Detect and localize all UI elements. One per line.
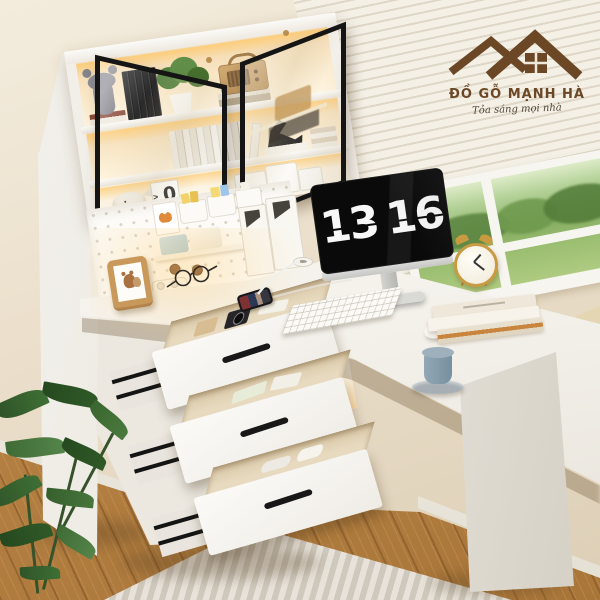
drawer-slide — [112, 366, 163, 384]
drawer-handle[interactable] — [264, 489, 313, 510]
leaf — [45, 488, 94, 509]
bear-illustration-small — [132, 276, 141, 287]
hanging-watch — [169, 263, 181, 275]
cup-lid — [422, 347, 454, 358]
note-card — [220, 184, 230, 196]
photo-frame-mat — [113, 262, 146, 302]
leaf — [86, 400, 132, 441]
cable-in-drawer — [296, 443, 325, 463]
power-socket — [170, 279, 179, 288]
product-photo-scene: ĐỒ GỖ MẠNH HÀ Tỏa sáng mọi nhà — [0, 0, 600, 600]
leaf — [0, 518, 54, 551]
papers-in-drawer — [270, 372, 303, 391]
alarm-clock-bell — [454, 233, 469, 246]
hanging-watch — [191, 264, 203, 276]
power-socket — [156, 281, 165, 290]
note-card — [240, 181, 250, 191]
coffee-cup — [410, 342, 466, 396]
leaf — [20, 565, 61, 582]
brand-logo: ĐỒ GỖ MẠNH HÀ Tỏa sáng mọi nhà — [438, 28, 596, 115]
note-card — [210, 187, 220, 198]
cable-grommet — [293, 257, 313, 267]
note-card — [190, 191, 199, 203]
leaf — [5, 434, 65, 461]
pegboard-bin — [178, 199, 209, 225]
brand-name: ĐỒ GỖ MẠNH HÀ — [438, 87, 596, 102]
camera-lens — [232, 311, 246, 327]
book-spine-text — [463, 301, 505, 308]
photo-frame — [106, 255, 153, 312]
house-roofs-icon — [439, 28, 595, 82]
monitor-screen: 13 16 — [309, 167, 454, 275]
door-hinge — [283, 30, 289, 36]
note-card — [180, 193, 190, 205]
leaf — [0, 470, 43, 513]
drawer-slide — [158, 527, 209, 545]
fox-illustration — [158, 211, 172, 224]
alarm-clock — [452, 234, 496, 284]
bear-ear — [129, 270, 134, 275]
fox-art-card — [152, 201, 180, 236]
drawer-handle[interactable] — [222, 343, 271, 364]
leaf — [53, 524, 99, 560]
pegboard-bin — [206, 192, 237, 218]
potted-plant — [0, 386, 163, 600]
drawer-handle[interactable] — [240, 417, 289, 438]
screen-reflection — [310, 168, 453, 274]
door-hinge — [206, 57, 212, 63]
grommet-hole — [298, 260, 307, 263]
